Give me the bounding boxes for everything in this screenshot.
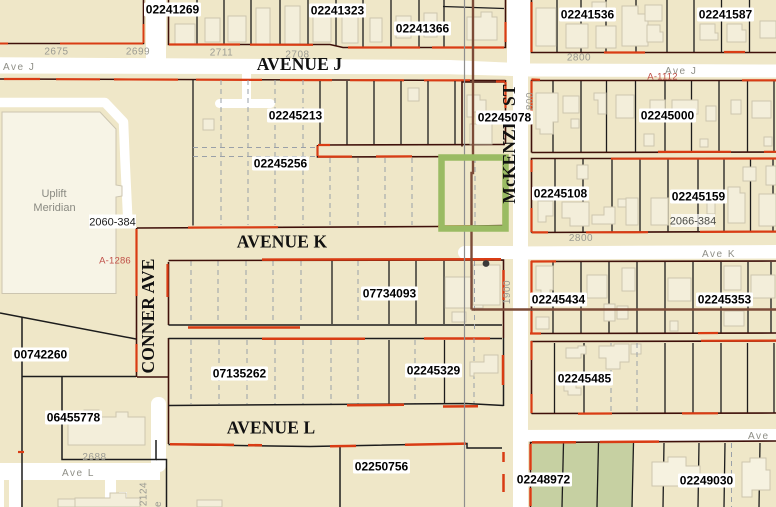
svg-text:02241587: 02241587 bbox=[699, 8, 753, 22]
svg-text:02249030: 02249030 bbox=[680, 474, 734, 488]
svg-text:02241536: 02241536 bbox=[561, 8, 615, 22]
svg-text:Ave: Ave bbox=[748, 431, 770, 442]
svg-text:02245108: 02245108 bbox=[534, 187, 588, 201]
svg-text:AVENUE L: AVENUE L bbox=[227, 418, 316, 438]
svg-text:07734093: 07734093 bbox=[363, 287, 417, 301]
svg-text:02250756: 02250756 bbox=[355, 460, 409, 474]
svg-text:Ave J: Ave J bbox=[3, 62, 35, 73]
svg-text:2066-384: 2066-384 bbox=[670, 216, 717, 228]
svg-text:02245078: 02245078 bbox=[478, 111, 532, 125]
svg-text:Uplift: Uplift bbox=[41, 188, 66, 200]
svg-text:02245159: 02245159 bbox=[672, 190, 726, 204]
svg-text:02245329: 02245329 bbox=[407, 364, 461, 378]
svg-text:07135262: 07135262 bbox=[213, 367, 267, 381]
svg-text:2675: 2675 bbox=[44, 47, 68, 58]
svg-text:AVENUE K: AVENUE K bbox=[237, 232, 328, 252]
svg-text:2708: 2708 bbox=[285, 50, 309, 61]
svg-text:Ave K: Ave K bbox=[702, 249, 736, 260]
svg-text:Ave L: Ave L bbox=[62, 468, 95, 479]
svg-text:e: e bbox=[153, 501, 164, 507]
svg-text:2060-384: 2060-384 bbox=[89, 217, 136, 229]
svg-text:2688: 2688 bbox=[82, 452, 106, 463]
svg-text:02241366: 02241366 bbox=[396, 22, 450, 36]
svg-text:A-1112: A-1112 bbox=[647, 72, 677, 83]
svg-text:00742260: 00742260 bbox=[14, 348, 68, 362]
svg-text:02241269: 02241269 bbox=[146, 3, 200, 17]
svg-text:02248972: 02248972 bbox=[517, 473, 571, 487]
svg-text:06455778: 06455778 bbox=[47, 411, 101, 425]
svg-text:A-1286: A-1286 bbox=[99, 256, 131, 267]
svg-text:Meridian: Meridian bbox=[33, 202, 75, 214]
svg-text:2699: 2699 bbox=[126, 47, 150, 58]
svg-text:02241323: 02241323 bbox=[311, 4, 365, 18]
svg-text:CONNER AVE: CONNER AVE bbox=[138, 259, 158, 374]
svg-text:02245256: 02245256 bbox=[254, 157, 308, 171]
svg-text:1900: 1900 bbox=[502, 280, 513, 304]
svg-text:02245353: 02245353 bbox=[698, 293, 752, 307]
svg-text:2800: 2800 bbox=[567, 53, 591, 64]
svg-text:2124: 2124 bbox=[139, 482, 150, 506]
svg-text:02245485: 02245485 bbox=[558, 372, 612, 386]
svg-text:McKENZIE ST: McKENZIE ST bbox=[499, 84, 519, 203]
svg-text:2711: 2711 bbox=[210, 48, 234, 59]
svg-text:02245434: 02245434 bbox=[532, 293, 586, 307]
svg-text:02245000: 02245000 bbox=[641, 109, 695, 123]
svg-text:02245213: 02245213 bbox=[269, 109, 323, 123]
svg-text:2800: 2800 bbox=[569, 233, 593, 244]
